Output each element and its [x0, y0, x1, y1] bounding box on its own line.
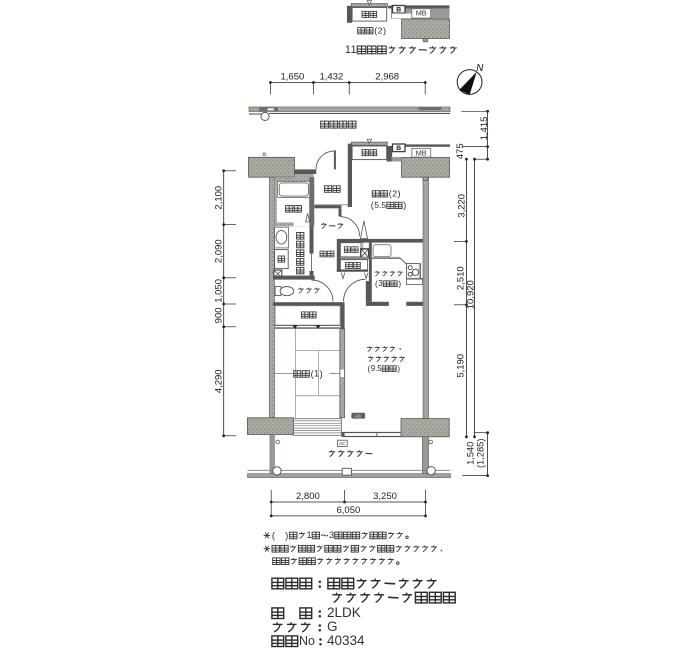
svg-text:): )	[398, 279, 401, 288]
svg-text:2,968: 2,968	[375, 72, 399, 83]
svg-text:): )	[383, 26, 386, 36]
svg-text:1: 1	[306, 530, 311, 540]
svg-text:): )	[398, 189, 401, 199]
svg-text:1,432: 1,432	[320, 72, 344, 83]
svg-text:5: 5	[381, 200, 386, 210]
svg-text:1,415: 1,415	[479, 117, 490, 141]
svg-text:900: 900	[213, 307, 224, 323]
svg-text:1: 1	[351, 44, 357, 56]
svg-text:MB: MB	[416, 148, 427, 157]
svg-text:No: No	[299, 634, 315, 648]
svg-text:): )	[397, 364, 400, 373]
svg-text:3,250: 3,250	[373, 491, 397, 502]
svg-text:(1,285): (1,285)	[476, 439, 486, 468]
svg-text:AC: AC	[355, 413, 362, 418]
svg-text:B: B	[396, 7, 401, 14]
svg-text:10,920: 10,920	[465, 280, 476, 309]
svg-text:(: (	[272, 530, 276, 541]
svg-text:B: B	[396, 145, 401, 152]
svg-text:AC: AC	[339, 441, 346, 447]
svg-text:1: 1	[314, 369, 319, 379]
svg-text:1,540: 1,540	[465, 442, 475, 465]
svg-text:5,190: 5,190	[455, 354, 466, 378]
svg-text:475: 475	[455, 143, 466, 159]
svg-text:): )	[285, 530, 288, 541]
svg-text:5: 5	[377, 364, 382, 373]
svg-text:G: G	[327, 619, 338, 634]
svg-text:40334: 40334	[327, 633, 365, 648]
svg-text:): )	[403, 200, 406, 210]
svg-text:4,290: 4,290	[213, 369, 224, 393]
svg-text:2,800: 2,800	[296, 491, 320, 502]
svg-text:6,050: 6,050	[337, 505, 361, 516]
svg-text:2: 2	[392, 189, 397, 199]
svg-text:): )	[320, 369, 323, 379]
svg-text:3: 3	[378, 279, 383, 288]
svg-text:1,650: 1,650	[281, 72, 305, 83]
svg-text:MB: MB	[416, 8, 427, 17]
svg-text:3,220: 3,220	[457, 194, 468, 218]
svg-text:2,100: 2,100	[213, 186, 224, 210]
svg-text:3: 3	[329, 530, 334, 540]
svg-text:N: N	[476, 63, 484, 74]
svg-text:2LDK: 2LDK	[327, 605, 361, 620]
svg-text:1,050: 1,050	[213, 279, 224, 303]
svg-text:2: 2	[378, 25, 383, 35]
svg-text:2,090: 2,090	[213, 239, 224, 263]
